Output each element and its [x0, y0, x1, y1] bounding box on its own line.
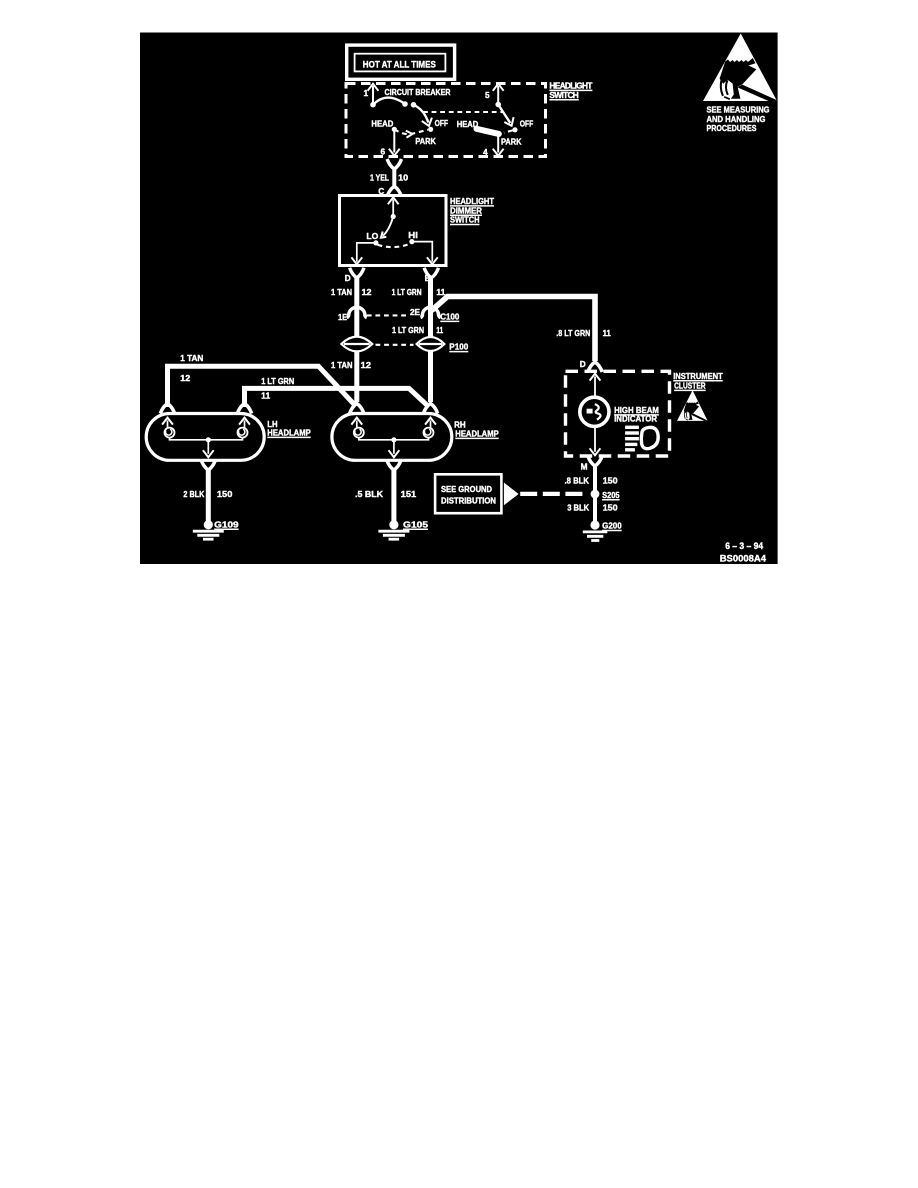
- svg-text:LO: LO: [366, 231, 379, 241]
- svg-text:M: M: [581, 461, 588, 471]
- svg-text:1 LT GRN: 1 LT GRN: [392, 287, 422, 297]
- svg-text:12: 12: [361, 360, 372, 370]
- svg-text:151: 151: [401, 489, 417, 499]
- svg-text:OFF: OFF: [435, 118, 449, 128]
- svg-text:HEAD: HEAD: [371, 119, 393, 129]
- svg-text:2 BLK: 2 BLK: [183, 489, 204, 499]
- svg-text:11: 11: [436, 287, 445, 297]
- svg-text:HEADLAMP: HEADLAMP: [455, 429, 499, 439]
- svg-text:SEE GROUND: SEE GROUND: [441, 484, 492, 494]
- svg-text:G200: G200: [602, 521, 622, 531]
- svg-text:1 TAN: 1 TAN: [180, 353, 203, 363]
- svg-text:.8 BLK: .8 BLK: [565, 476, 590, 486]
- svg-text:C100: C100: [440, 312, 459, 322]
- svg-text:G109: G109: [214, 519, 239, 529]
- svg-text:11: 11: [261, 391, 270, 401]
- svg-text:10: 10: [398, 173, 408, 183]
- svg-text:4: 4: [483, 147, 488, 157]
- svg-text:OFF: OFF: [520, 119, 534, 129]
- svg-text:11: 11: [603, 328, 612, 338]
- svg-text:DISTRIBUTION: DISTRIBUTION: [441, 496, 496, 506]
- svg-text:5: 5: [485, 90, 490, 100]
- svg-text:HOT AT ALL TIMES: HOT AT ALL TIMES: [363, 59, 436, 69]
- svg-text:3 BLK: 3 BLK: [567, 502, 589, 512]
- svg-text:150: 150: [217, 489, 233, 499]
- svg-text:CLUSTER: CLUSTER: [674, 381, 706, 391]
- svg-text:1 YEL: 1 YEL: [370, 173, 389, 183]
- svg-text:PARK: PARK: [415, 136, 436, 146]
- svg-text:P100: P100: [449, 342, 468, 352]
- svg-text:1 LT GRN: 1 LT GRN: [261, 376, 294, 386]
- svg-text:12: 12: [362, 287, 372, 297]
- svg-text:HI: HI: [408, 230, 418, 240]
- svg-text:6: 6: [381, 147, 386, 157]
- svg-text:S205: S205: [602, 490, 620, 500]
- svg-text:PARK: PARK: [501, 137, 522, 147]
- svg-text:11: 11: [436, 325, 443, 335]
- svg-text:1 TAN: 1 TAN: [331, 360, 353, 370]
- svg-text:SWITCH: SWITCH: [549, 90, 578, 100]
- svg-text:D: D: [345, 273, 351, 283]
- svg-text:INDICATOR: INDICATOR: [614, 414, 657, 424]
- svg-text:150: 150: [603, 476, 618, 486]
- svg-text:6 – 3 – 94: 6 – 3 – 94: [725, 541, 764, 552]
- svg-text:.5 BLK: .5 BLK: [355, 489, 383, 499]
- svg-text:HEADLAMP: HEADLAMP: [267, 428, 311, 438]
- svg-text:SWITCH: SWITCH: [450, 215, 480, 225]
- svg-text:2E: 2E: [410, 307, 420, 317]
- svg-text:.8 LT GRN: .8 LT GRN: [556, 328, 590, 338]
- svg-text:BS0008A4: BS0008A4: [720, 553, 767, 564]
- svg-text:1 LT GRN: 1 LT GRN: [392, 325, 424, 335]
- svg-text:G105: G105: [403, 519, 428, 529]
- svg-text:1 TAN: 1 TAN: [331, 287, 352, 297]
- svg-text:PROCEDURES: PROCEDURES: [707, 123, 757, 133]
- svg-text:150: 150: [603, 502, 618, 512]
- svg-text:CIRCUIT BREAKER: CIRCUIT BREAKER: [385, 87, 451, 97]
- svg-text:INSTRUMENT: INSTRUMENT: [673, 371, 723, 381]
- svg-text:12: 12: [180, 373, 190, 383]
- svg-text:D: D: [580, 359, 586, 369]
- svg-text:1E: 1E: [338, 312, 347, 322]
